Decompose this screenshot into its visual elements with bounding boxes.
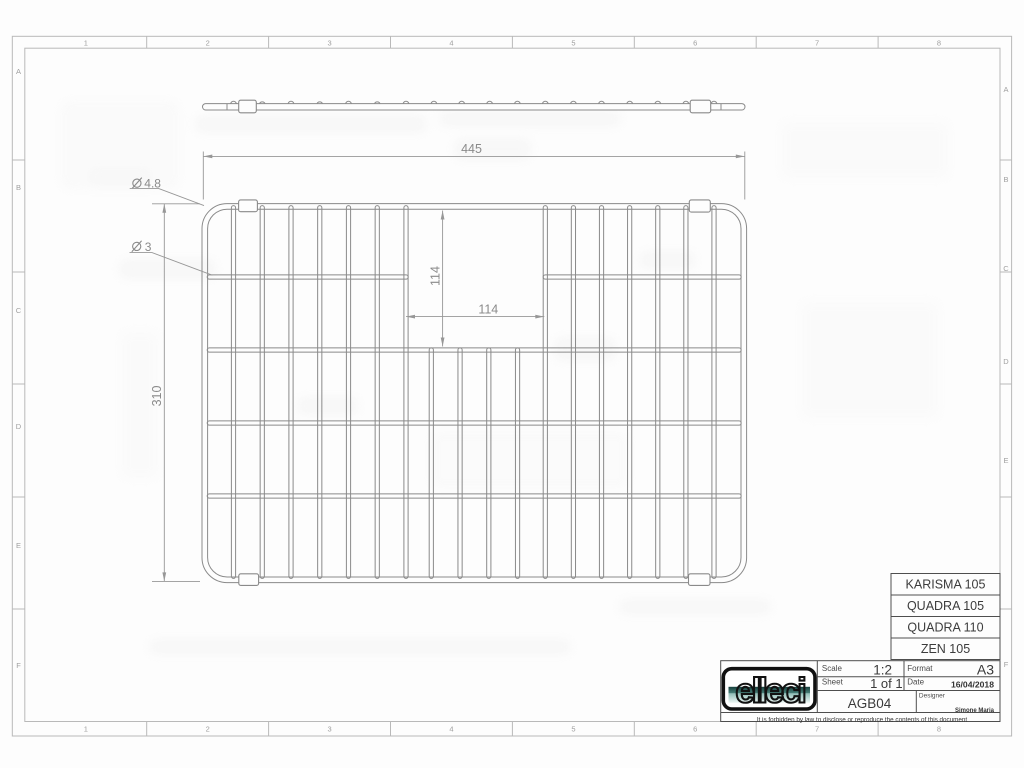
- svg-text:6: 6: [693, 725, 697, 734]
- svg-text:ZEN 105: ZEN 105: [921, 642, 970, 656]
- svg-text:F: F: [16, 661, 21, 670]
- svg-text:A: A: [16, 67, 21, 76]
- svg-text:Format: Format: [907, 664, 933, 673]
- svg-text:C: C: [1003, 264, 1009, 273]
- svg-text:1: 1: [84, 725, 88, 734]
- svg-text:8: 8: [937, 38, 941, 47]
- svg-text:3: 3: [145, 240, 152, 254]
- svg-text:5: 5: [571, 725, 575, 734]
- svg-text:Sheet: Sheet: [822, 677, 844, 686]
- svg-text:3: 3: [328, 38, 332, 47]
- svg-text:7: 7: [815, 725, 819, 734]
- svg-text:Designer: Designer: [919, 692, 946, 699]
- svg-text:It is forbidden by law to disc: It is forbidden by law to disclose or re…: [757, 716, 968, 723]
- svg-text:6: 6: [693, 38, 697, 47]
- svg-text:Date: Date: [907, 677, 924, 686]
- svg-text:1 of 1: 1 of 1: [870, 676, 903, 691]
- svg-text:QUADRA 110: QUADRA 110: [907, 621, 983, 635]
- svg-text:B: B: [1003, 175, 1008, 184]
- svg-text:AGB04: AGB04: [848, 696, 892, 711]
- svg-text:1: 1: [84, 38, 88, 47]
- svg-text:5: 5: [571, 38, 575, 47]
- svg-text:4: 4: [449, 725, 453, 734]
- svg-text:F: F: [1004, 660, 1009, 669]
- svg-text:445: 445: [461, 142, 482, 156]
- svg-text:E: E: [1003, 456, 1008, 465]
- svg-text:114: 114: [478, 303, 498, 317]
- svg-text:KARISMA 105: KARISMA 105: [906, 578, 986, 592]
- svg-text:A3: A3: [977, 662, 994, 678]
- svg-text:4: 4: [449, 38, 453, 47]
- svg-text:D: D: [16, 422, 22, 431]
- svg-text:Simone Maria: Simone Maria: [955, 708, 995, 714]
- svg-text:16/04/2018: 16/04/2018: [951, 679, 994, 689]
- svg-text:3: 3: [328, 725, 332, 734]
- svg-text:QUADRA 105: QUADRA 105: [907, 599, 984, 613]
- svg-text:B: B: [16, 183, 21, 192]
- svg-text:elleci: elleci: [735, 672, 805, 711]
- svg-text:D: D: [1003, 357, 1009, 366]
- svg-text:8: 8: [937, 725, 941, 734]
- svg-text:E: E: [16, 541, 21, 550]
- svg-text:310: 310: [150, 386, 164, 407]
- svg-text:7: 7: [815, 38, 819, 47]
- svg-text:C: C: [16, 306, 22, 315]
- svg-text:2: 2: [206, 38, 210, 47]
- svg-text:114: 114: [429, 266, 443, 286]
- svg-text:2: 2: [206, 725, 210, 734]
- svg-text:A: A: [1003, 85, 1008, 94]
- svg-text:Scale: Scale: [822, 664, 843, 673]
